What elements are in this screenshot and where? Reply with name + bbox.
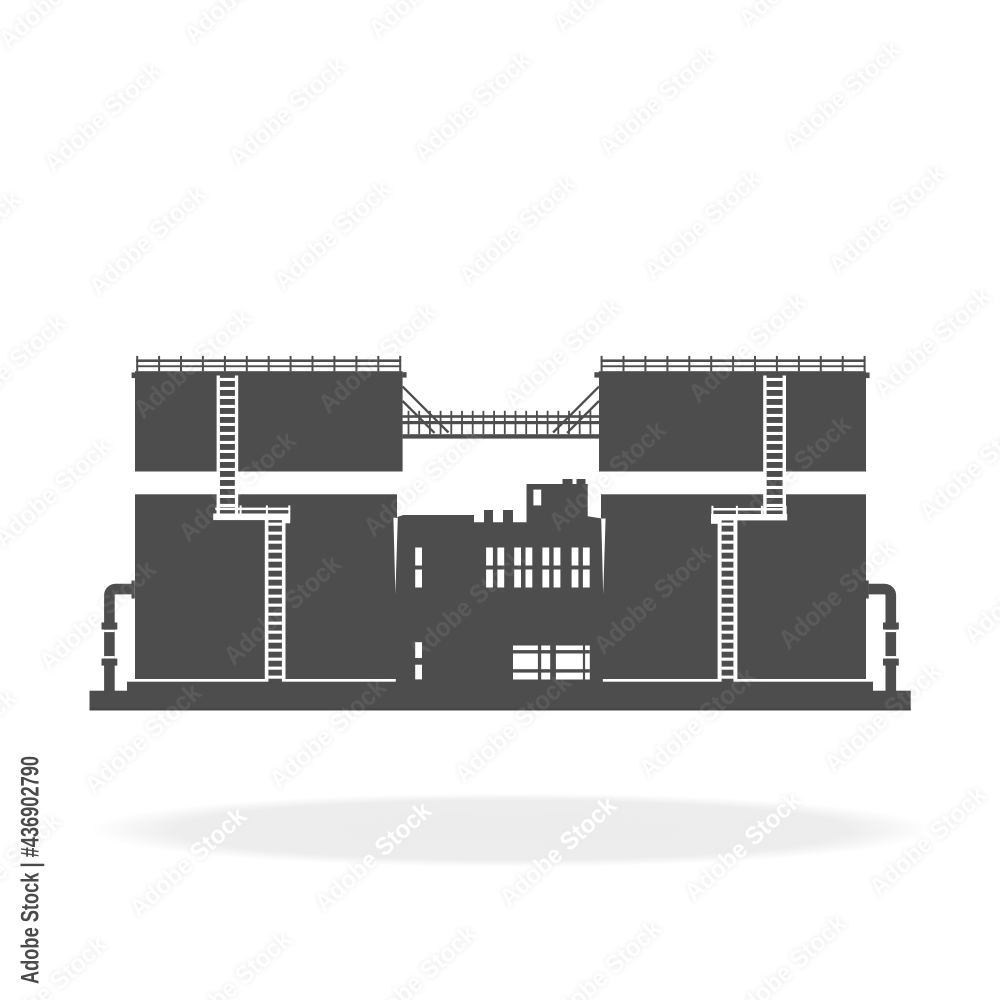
svg-text:Adobe Stock: Adobe Stock [222, 50, 352, 173]
svg-text:Adobe Stock | #436902790: Adobe Stock | #436902790 [17, 756, 45, 984]
svg-text:Adobe Stock: Adobe Stock [452, 168, 582, 291]
svg-text:Adobe Stock: Adobe Stock [777, 34, 907, 157]
svg-text:Adobe Stock: Adobe Stock [592, 39, 722, 162]
svg-text:Adobe Stock: Adobe Stock [732, 0, 862, 33]
svg-text:Adobe Stock: Adobe Stock [82, 178, 212, 301]
svg-text:Adobe Stock: Adobe Stock [407, 44, 537, 167]
svg-text:Adobe Stock: Adobe Stock [0, 307, 72, 430]
svg-text:Adobe Stock: Adobe Stock [353, 918, 483, 1000]
svg-text:Adobe Stock: Adobe Stock [632, 661, 762, 784]
svg-text:Adobe Stock: Adobe Stock [0, 0, 121, 54]
svg-text:Adobe Stock: Adobe Stock [168, 923, 298, 1000]
svg-text:Adobe Stock: Adobe Stock [267, 173, 397, 296]
svg-text:Adobe Stock: Adobe Stock [538, 913, 668, 1000]
svg-text:Adobe Stock: Adobe Stock [912, 404, 1000, 527]
svg-text:Adobe Stock: Adobe Stock [822, 157, 952, 280]
svg-text:Adobe Stock: Adobe Stock [637, 162, 767, 285]
svg-text:Adobe Stock: Adobe Stock [723, 908, 853, 1000]
svg-text:Adobe Stock: Adobe Stock [177, 0, 307, 49]
svg-text:Adobe Stock: Adobe Stock [362, 0, 492, 44]
svg-text:Adobe Stock: Adobe Stock [0, 184, 27, 307]
svg-text:Adobe Stock: Adobe Stock [0, 430, 117, 553]
svg-text:Adobe Stock: Adobe Stock [957, 527, 1000, 650]
svg-text:Adobe Stock: Adobe Stock [37, 55, 167, 178]
svg-text:Adobe Stock: Adobe Stock [547, 0, 677, 38]
svg-text:Adobe Stock: Adobe Stock [867, 280, 997, 403]
